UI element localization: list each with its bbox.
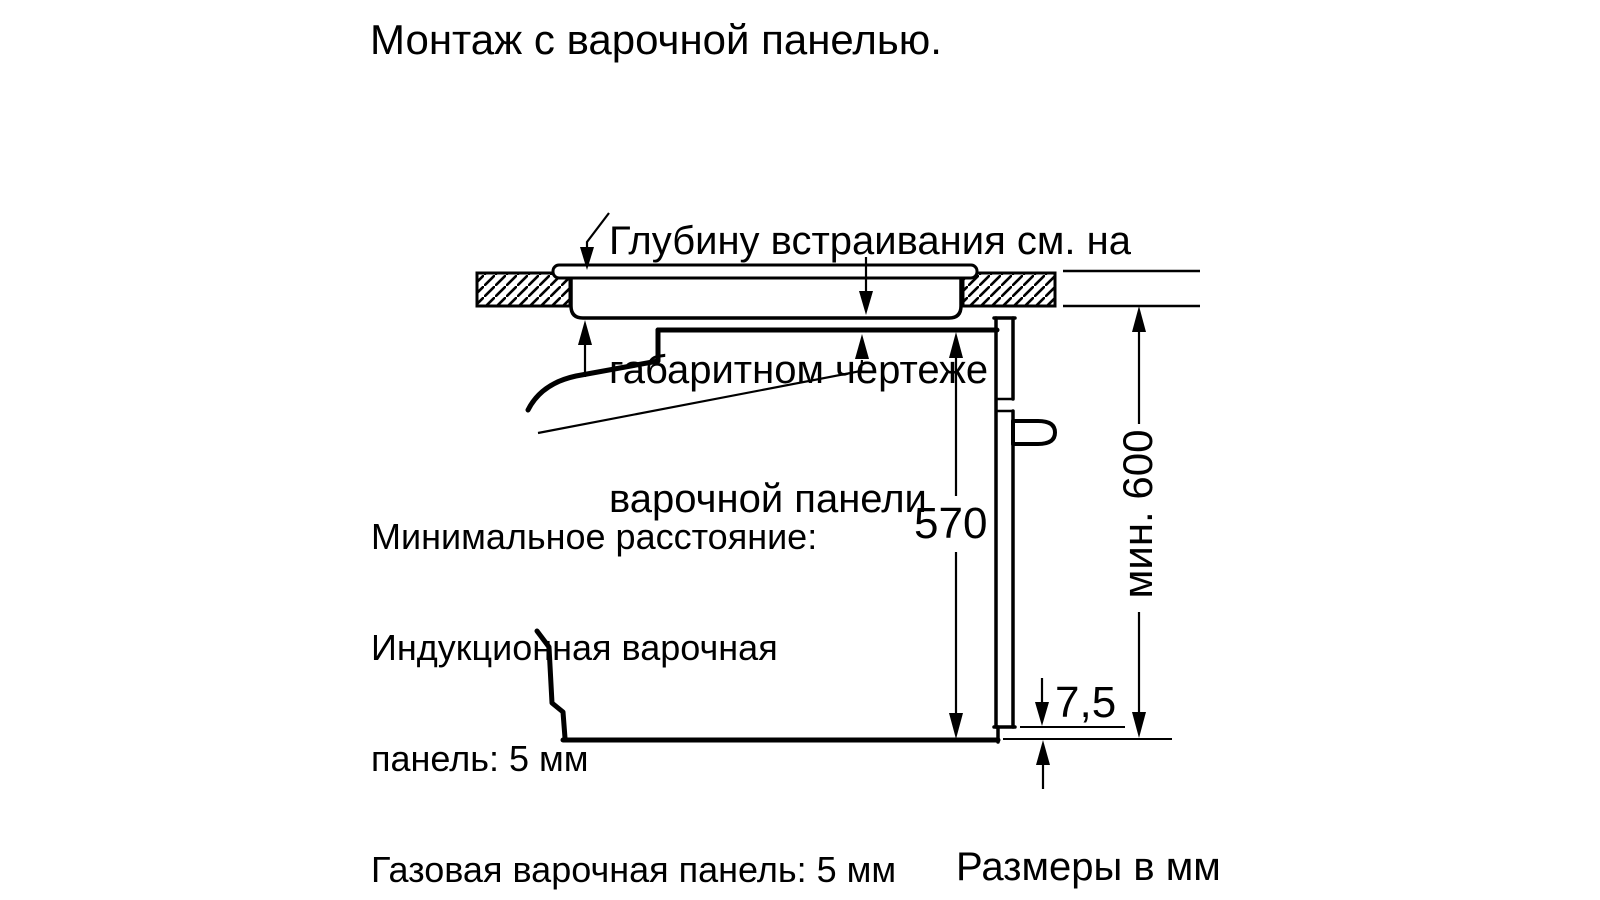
hob-bottom-arrow <box>578 320 592 377</box>
min-distance-note-line1: Минимальное расстояние: <box>371 518 926 555</box>
embedding-depth-note-line2: габаритном чертеже <box>609 349 1131 392</box>
installation-diagram-page: Монтаж с варочной панелью. Глубину встра… <box>0 0 1600 900</box>
dimension-label-570: 570 <box>914 502 987 546</box>
page-title: Монтаж с варочной панелью. <box>370 16 942 64</box>
extension-lines <box>1003 727 1172 739</box>
embedding-depth-note-line1: Глубину встраивания см. на <box>609 220 1131 263</box>
dimension-7-5 <box>1035 678 1050 789</box>
min-distance-note-line3: панель: 5 мм <box>371 740 926 777</box>
dimension-label-7-5: 7,5 <box>1055 681 1116 725</box>
min-distance-note-line2: Индукционная варочная <box>371 629 926 666</box>
units-note: Размеры в мм <box>956 845 1221 890</box>
min-distance-note: Минимальное расстояние: Индукционная вар… <box>371 444 926 900</box>
min-distance-note-line4: Газовая варочная панель: 5 мм <box>371 851 926 888</box>
dimension-label-min-600: мин. 600 <box>1117 398 1159 630</box>
